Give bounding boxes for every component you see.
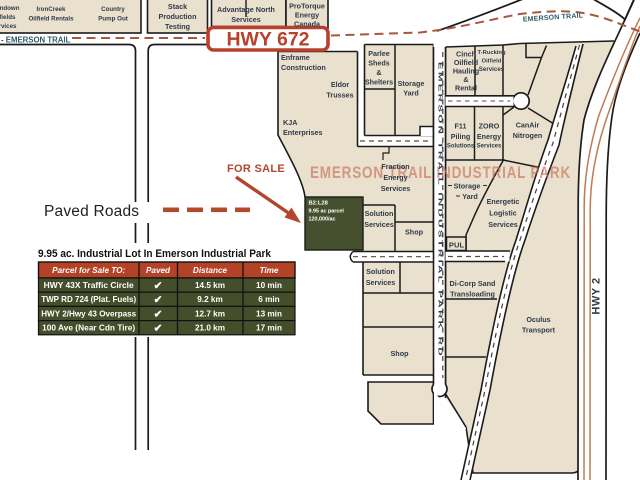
svg-text:Solution: Solution (365, 209, 394, 218)
svg-text:Services: Services (479, 66, 505, 73)
svg-text:Enframe: Enframe (281, 53, 310, 62)
svg-text:F11: F11 (455, 122, 467, 131)
svg-text:Services: Services (364, 220, 394, 229)
svg-text:17 min: 17 min (256, 324, 282, 333)
svg-text:9.2 km: 9.2 km (197, 295, 223, 304)
svg-text:Services: Services (381, 184, 411, 193)
svg-text:Paved: Paved (146, 266, 171, 275)
svg-text:HWY 2: HWY 2 (591, 277, 603, 314)
svg-text:HWY 2/Hwy 43 Overpass: HWY 2/Hwy 43 Overpass (41, 309, 136, 318)
svg-text:10 min: 10 min (256, 281, 282, 290)
svg-text:HWY 43X Traffic Circle: HWY 43X Traffic Circle (44, 281, 134, 290)
svg-text:Sandown: Sandown (0, 5, 20, 12)
svg-text:IronCreek: IronCreek (37, 6, 66, 13)
svg-text:Di-Corp Sand: Di-Corp Sand (450, 279, 496, 288)
svg-text:Oculus: Oculus (526, 315, 550, 324)
svg-text:6 min: 6 min (258, 295, 279, 304)
svg-text:Nitrogen: Nitrogen (513, 131, 543, 140)
svg-text:- EMERSON TRAIL: - EMERSON TRAIL (1, 36, 71, 45)
svg-text:Yard: Yard (403, 89, 419, 98)
svg-text:FOR SALE: FOR SALE (227, 163, 285, 175)
svg-text:Logistic: Logistic (489, 209, 517, 218)
svg-text:Country: Country (101, 6, 125, 13)
svg-text:Enterprises: Enterprises (283, 128, 323, 137)
svg-text:Storage: Storage (398, 79, 425, 88)
svg-text:Transloading: Transloading (450, 290, 495, 299)
svg-text:Shop: Shop (405, 228, 424, 237)
svg-text:Transport: Transport (522, 326, 556, 335)
svg-text:Services: Services (366, 278, 396, 287)
svg-text:Solutions: Solutions (447, 144, 475, 150)
svg-text:Oilfields: Oilfields (0, 14, 16, 21)
svg-text:Distance: Distance (193, 266, 228, 275)
svg-text:Services: Services (0, 23, 17, 30)
svg-text:13 min: 13 min (256, 309, 282, 318)
svg-text:PUL: PUL (449, 241, 465, 250)
svg-text:Oilfield: Oilfield (482, 59, 502, 65)
svg-text:Shop: Shop (391, 349, 410, 358)
svg-text:ZORO: ZORO (479, 122, 500, 131)
svg-text:Sheds: Sheds (368, 59, 390, 68)
svg-text:9.95 ac. Industrial Lot In Eme: 9.95 ac. Industrial Lot In Emerson Indus… (38, 248, 271, 260)
svg-text:9.95 ac parcel: 9.95 ac parcel (309, 209, 345, 215)
svg-text:CanAir: CanAir (516, 121, 540, 130)
svg-text:✔: ✔ (154, 308, 163, 320)
svg-text:Energy: Energy (477, 132, 501, 141)
svg-text:✔: ✔ (154, 294, 163, 306)
svg-text:Parlee: Parlee (368, 49, 390, 58)
svg-text:✔: ✔ (154, 280, 163, 292)
svg-text:HWY 672: HWY 672 (226, 29, 309, 51)
svg-text:✔: ✔ (154, 323, 163, 335)
svg-text:KJA: KJA (283, 118, 297, 127)
svg-text:Paved Roads: Paved Roads (44, 203, 139, 220)
svg-text:Piling: Piling (451, 132, 471, 141)
svg-text:Services: Services (231, 15, 261, 24)
svg-text:Services: Services (477, 144, 502, 150)
svg-text:Construction: Construction (281, 63, 326, 72)
svg-text:Pump Out: Pump Out (98, 16, 128, 23)
svg-text:Oilfield Rentals: Oilfield Rentals (28, 16, 74, 23)
svg-text:Eldor: Eldor (331, 80, 350, 89)
svg-text:Stack: Stack (168, 2, 187, 11)
svg-text:T-Rucking: T-Rucking (477, 50, 505, 56)
svg-text:Yard: Yard (462, 192, 478, 201)
svg-text:Time: Time (260, 266, 279, 275)
svg-text:Energetic: Energetic (487, 197, 520, 206)
svg-text:120,000/ac: 120,000/ac (309, 217, 336, 223)
svg-text:EMERSON TRAIL INDUSTRIAL PARK: EMERSON TRAIL INDUSTRIAL PARK RD (436, 62, 442, 358)
svg-text:Services: Services (488, 220, 518, 229)
svg-text:&: & (376, 68, 381, 77)
svg-text:B2:L28: B2:L28 (309, 201, 329, 207)
svg-text:14.5 km: 14.5 km (195, 281, 225, 290)
svg-text:100 Ave (Near Cdn Tire): 100 Ave (Near Cdn Tire) (42, 324, 135, 333)
svg-text:Canada: Canada (294, 20, 321, 29)
svg-text:ProTorque: ProTorque (289, 2, 325, 11)
svg-text:Testing: Testing (165, 22, 190, 31)
svg-text:21.0 km: 21.0 km (195, 324, 225, 333)
svg-text:Fraction: Fraction (381, 162, 409, 171)
svg-text:Trusses: Trusses (326, 91, 353, 100)
svg-text:12.7 km: 12.7 km (195, 309, 225, 318)
svg-text:Energy: Energy (295, 11, 319, 20)
svg-text:Storage: Storage (454, 182, 481, 191)
svg-text:Advantage North: Advantage North (217, 5, 275, 14)
svg-text:Rental: Rental (455, 84, 477, 93)
svg-text:Energy: Energy (383, 173, 407, 182)
svg-text:Shelters: Shelters (365, 78, 393, 87)
svg-text:Solution: Solution (366, 267, 395, 276)
svg-text:TWP RD 724 (Plat. Fuels): TWP RD 724 (Plat. Fuels) (41, 295, 136, 304)
svg-text:Production: Production (159, 12, 197, 21)
svg-text:Parcel for Sale TO:: Parcel for Sale TO: (52, 266, 125, 275)
